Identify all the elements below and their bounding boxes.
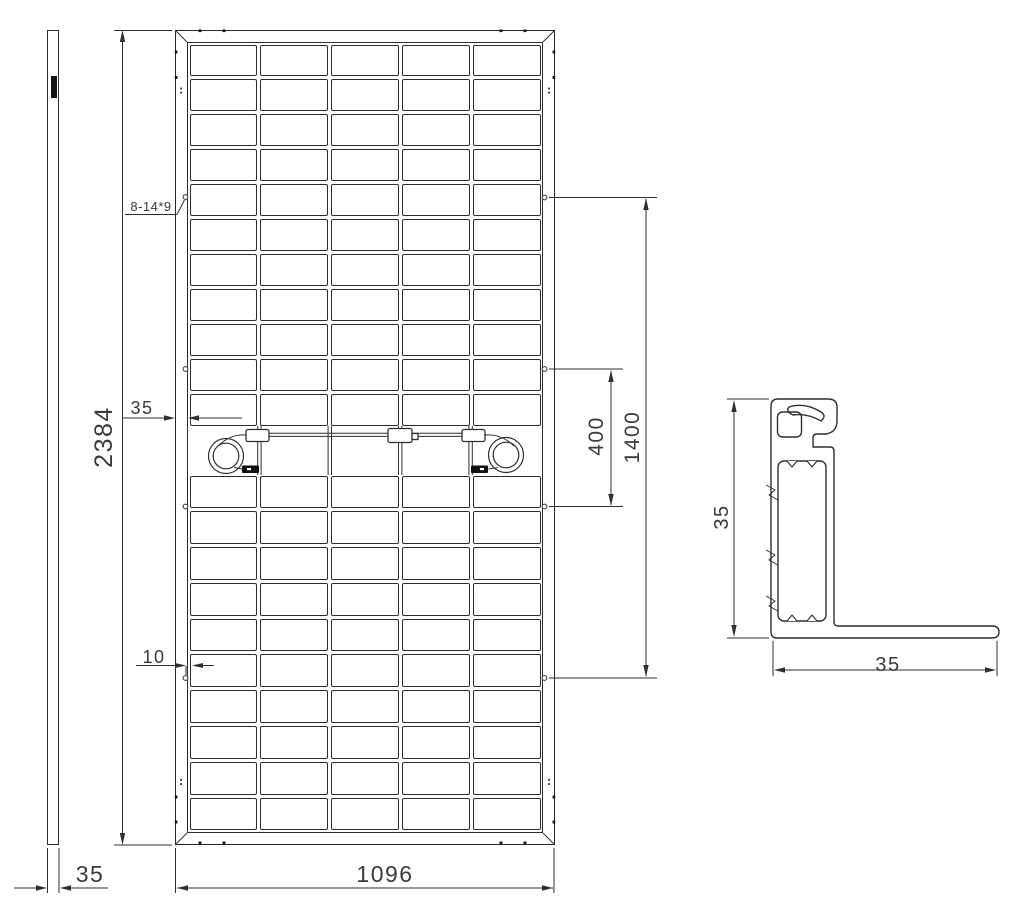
mounting-holes: [183, 195, 547, 681]
junction-box-center: [388, 429, 412, 443]
connector-right: [471, 466, 488, 474]
drawing-linework: [0, 0, 1024, 913]
cable-coil-left-inner: [213, 443, 239, 469]
dim-mounting-hole-outer-span: 1400: [619, 394, 645, 480]
dim-section-flange-depth: 35: [864, 653, 912, 677]
junction-box-left: [246, 430, 269, 442]
cable-coil-right-inner: [493, 442, 519, 468]
technical-drawing: 35 2384 1096 35 10 8-14*9 400 1400 35 35: [0, 0, 1024, 913]
frame-miter-lines: [175, 30, 555, 845]
dimension-lines: [14, 31, 997, 894]
frame-cross-section: [766, 399, 999, 638]
dim-side-thickness: 35: [66, 862, 114, 886]
note-mounting-slots: 8-14*9: [124, 199, 178, 214]
junction-box-right: [462, 430, 485, 442]
dim-mounting-hole-span: 400: [583, 401, 609, 471]
junction-box-center-stub: [412, 434, 418, 440]
dim-module-height: 2384: [87, 377, 121, 497]
dimension-arrowheads: [36, 30, 996, 891]
bus-wires: [258, 433, 472, 436]
dim-grounding-hole-offset: 10: [138, 648, 170, 666]
dim-module-width: 1096: [335, 861, 435, 887]
dim-frame-face-width: 35: [124, 398, 160, 418]
dim-section-height: 35: [710, 494, 734, 540]
